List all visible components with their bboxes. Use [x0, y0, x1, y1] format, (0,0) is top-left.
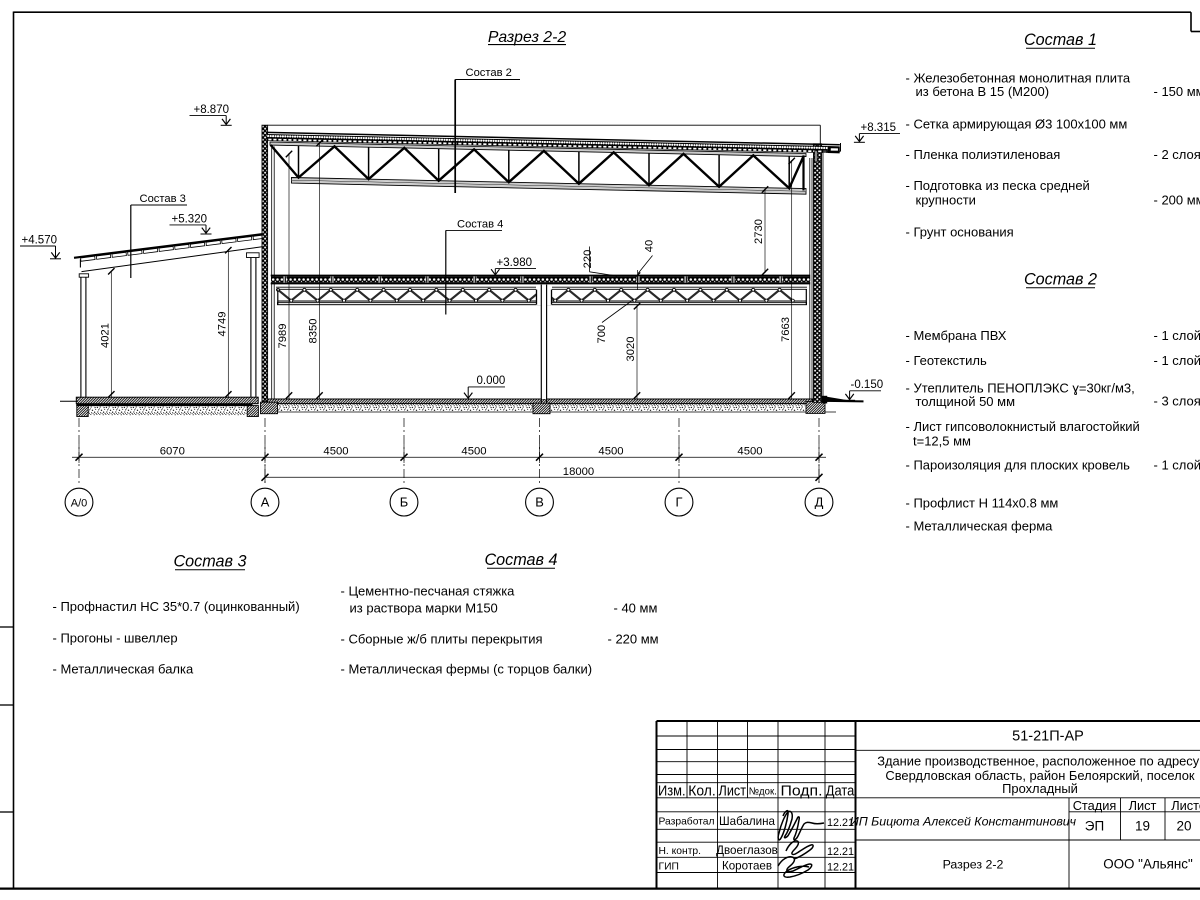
svg-text:4500: 4500 [737, 446, 762, 458]
svg-text:- Металлическая фермы (с торцо: - Металлическая фермы (с торцов балки) [341, 662, 593, 677]
svg-text:Лист: Лист [1129, 798, 1157, 813]
svg-text:- Пароизоляция для плоских кро: - Пароизоляция для плоских кровель [906, 458, 1131, 473]
svg-text:Состав 4: Состав 4 [484, 551, 557, 569]
svg-text:Коротаев: Коротаев [722, 860, 772, 873]
svg-text:Н. контр.: Н. контр. [659, 846, 702, 857]
svg-text:- Грунт основания: - Грунт основания [906, 225, 1014, 240]
svg-text:- Металлическая ферма: - Металлическая ферма [906, 519, 1054, 534]
svg-text:Д: Д [815, 495, 824, 510]
svg-text:№док.: №док. [749, 787, 777, 798]
svg-text:4500: 4500 [461, 446, 486, 458]
svg-text:- 2 слоя: - 2 слоя [1154, 147, 1200, 162]
svg-text:- 3 слоя: - 3 слоя [1154, 394, 1200, 409]
svg-text:Двоеглазов: Двоеглазов [716, 844, 778, 857]
svg-text:- Мембрана ПВХ: - Мембрана ПВХ [906, 328, 1007, 343]
svg-text:+4.570: +4.570 [22, 234, 58, 246]
svg-text:40: 40 [643, 240, 655, 252]
svg-text:Разработал: Разработал [659, 816, 715, 828]
svg-text:Состав 3: Состав 3 [140, 193, 186, 205]
svg-text:- 150 мм: - 150 мм [1154, 84, 1200, 99]
svg-text:+8.315: +8.315 [861, 122, 897, 134]
svg-text:- 200 мм: - 200 мм [1154, 192, 1200, 207]
svg-text:- Геотекстиль: - Геотекстиль [906, 353, 987, 368]
svg-text:700: 700 [596, 325, 608, 344]
svg-text:4021: 4021 [99, 323, 111, 348]
svg-text:Лист: Лист [719, 783, 747, 799]
svg-text:Состав 4: Состав 4 [457, 218, 503, 230]
svg-text:- Сборные ж/б плиты перекрытия: - Сборные ж/б плиты перекрытия [341, 632, 543, 647]
svg-text:ЭП: ЭП [1085, 819, 1104, 834]
svg-text:- 40 мм: - 40 мм [614, 601, 658, 616]
svg-text:- Профнастил НС 35*0.7 (оцинко: - Профнастил НС 35*0.7 (оцинкованный) [53, 599, 300, 614]
svg-text:из раствора марки М150: из раствора марки М150 [350, 601, 498, 616]
svg-text:ООО "Альянс": ООО "Альянс" [1103, 857, 1193, 872]
svg-text:Здание производственное, распо: Здание производственное, расположенное п… [877, 753, 1200, 768]
svg-text:А: А [261, 495, 270, 510]
svg-text:В: В [535, 495, 544, 510]
svg-text:Состав 1: Состав 1 [1024, 31, 1097, 49]
svg-text:Состав 2: Состав 2 [466, 67, 512, 79]
svg-text:Г: Г [676, 495, 683, 510]
svg-text:20: 20 [1176, 819, 1191, 834]
svg-text:- 1 слой: - 1 слой [1154, 353, 1200, 368]
svg-text:220: 220 [582, 250, 594, 269]
svg-text:- 1 слой: - 1 слой [1154, 458, 1200, 473]
svg-text:51-21П-АР: 51-21П-АР [1012, 729, 1084, 745]
svg-text:А/0: А/0 [71, 498, 88, 510]
svg-text:+3.980: +3.980 [497, 257, 533, 269]
svg-text:2730: 2730 [753, 219, 765, 244]
svg-text:Стадия: Стадия [1073, 798, 1117, 813]
svg-text:Прохладный: Прохладный [1002, 781, 1078, 796]
svg-text:3020: 3020 [625, 337, 637, 362]
svg-text:19: 19 [1135, 819, 1150, 834]
svg-text:- 220 мм: - 220 мм [608, 632, 659, 647]
svg-text:Состав 2: Состав 2 [1024, 271, 1097, 289]
svg-text:крупности: крупности [916, 192, 976, 207]
svg-text:+5.320: +5.320 [172, 213, 208, 225]
svg-text:8350: 8350 [308, 319, 320, 344]
svg-text:7663: 7663 [780, 317, 792, 342]
svg-text:- Профлист Н 114х0.8 мм: - Профлист Н 114х0.8 мм [906, 496, 1059, 511]
svg-text:-0.150: -0.150 [851, 379, 884, 391]
svg-text:t=12,5 мм: t=12,5 мм [913, 433, 971, 448]
svg-text:0.000: 0.000 [477, 375, 506, 387]
svg-text:Разрез 2-2: Разрез 2-2 [943, 857, 1004, 871]
svg-text:- Лист гипсоволокнистый влагос: - Лист гипсоволокнистый влагостойкий [906, 419, 1140, 434]
svg-text:12.21: 12.21 [827, 846, 854, 858]
svg-text:- Цементно-песчаная стяжка: - Цементно-песчаная стяжка [341, 584, 516, 599]
svg-text:толщиной 50 мм: толщиной 50 мм [916, 394, 1016, 409]
svg-text:4749: 4749 [216, 312, 228, 337]
svg-text:Б: Б [400, 495, 408, 510]
svg-text:4500: 4500 [323, 446, 348, 458]
svg-text:- Подготовка из песка средней: - Подготовка из песка средней [906, 178, 1090, 193]
svg-text:ГИП: ГИП [659, 861, 679, 872]
svg-text:- 1 слой: - 1 слой [1154, 328, 1200, 343]
svg-text:- Прогоны - швеллер: - Прогоны - швеллер [53, 631, 178, 646]
svg-text:Состав 3: Состав 3 [173, 553, 246, 571]
svg-text:из бетона В 15 (М200): из бетона В 15 (М200) [916, 84, 1050, 99]
svg-text:Разрез 2-2: Разрез 2-2 [488, 29, 566, 46]
svg-text:7989: 7989 [277, 324, 289, 349]
svg-text:ИП Бицюта Алексей Константинов: ИП Бицюта Алексей Константинович [850, 815, 1077, 829]
svg-text:Листов: Листов [1171, 798, 1200, 813]
svg-text:Шабалина: Шабалина [719, 815, 776, 828]
svg-text:Дата: Дата [826, 783, 855, 799]
svg-text:4500: 4500 [598, 446, 623, 458]
svg-text:6070: 6070 [160, 446, 185, 458]
svg-text:+8.870: +8.870 [194, 104, 230, 116]
svg-text:12.21: 12.21 [827, 861, 854, 873]
svg-text:- Сетка армирующая Ø3 100х100: - Сетка армирующая Ø3 100х100 мм [906, 117, 1128, 132]
svg-text:- Металлическая балка: - Металлическая балка [53, 662, 194, 677]
svg-text:Кол.: Кол. [688, 783, 716, 799]
svg-text:Подп.: Подп. [781, 783, 823, 799]
svg-text:18000: 18000 [563, 466, 594, 478]
svg-text:- Пленка полиэтиленовая: - Пленка полиэтиленовая [906, 147, 1061, 162]
svg-text:Изм.: Изм. [658, 783, 686, 799]
